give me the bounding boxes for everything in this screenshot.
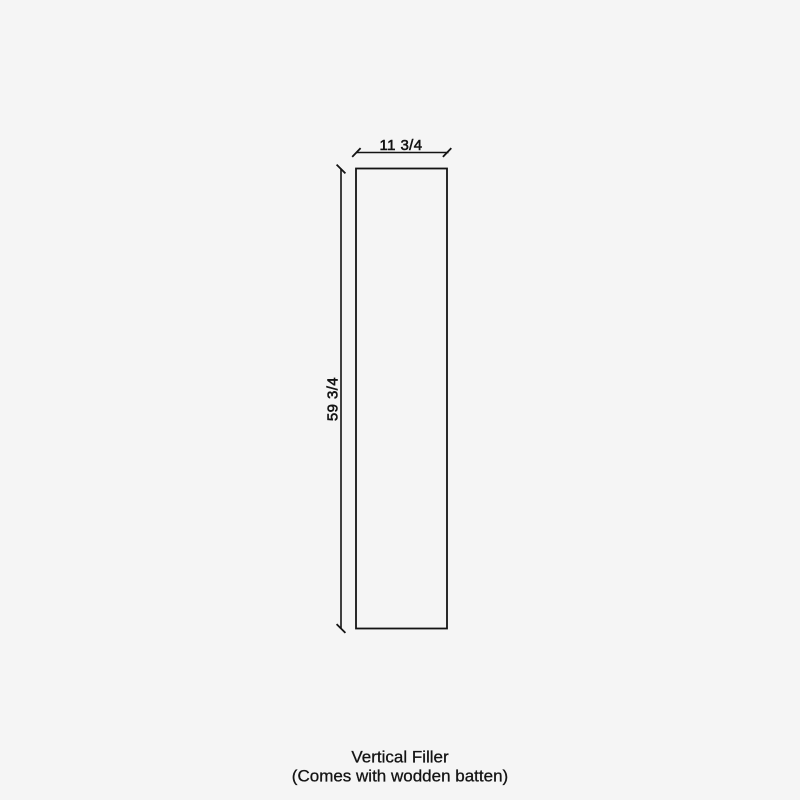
svg-text:11 3/4: 11 3/4	[380, 137, 423, 154]
svg-text:59 3/4: 59 3/4	[325, 377, 342, 421]
svg-text:Vertical Filler: Vertical Filler	[351, 748, 449, 767]
svg-text:(Comes with wodden batten): (Comes with wodden batten)	[292, 767, 508, 786]
